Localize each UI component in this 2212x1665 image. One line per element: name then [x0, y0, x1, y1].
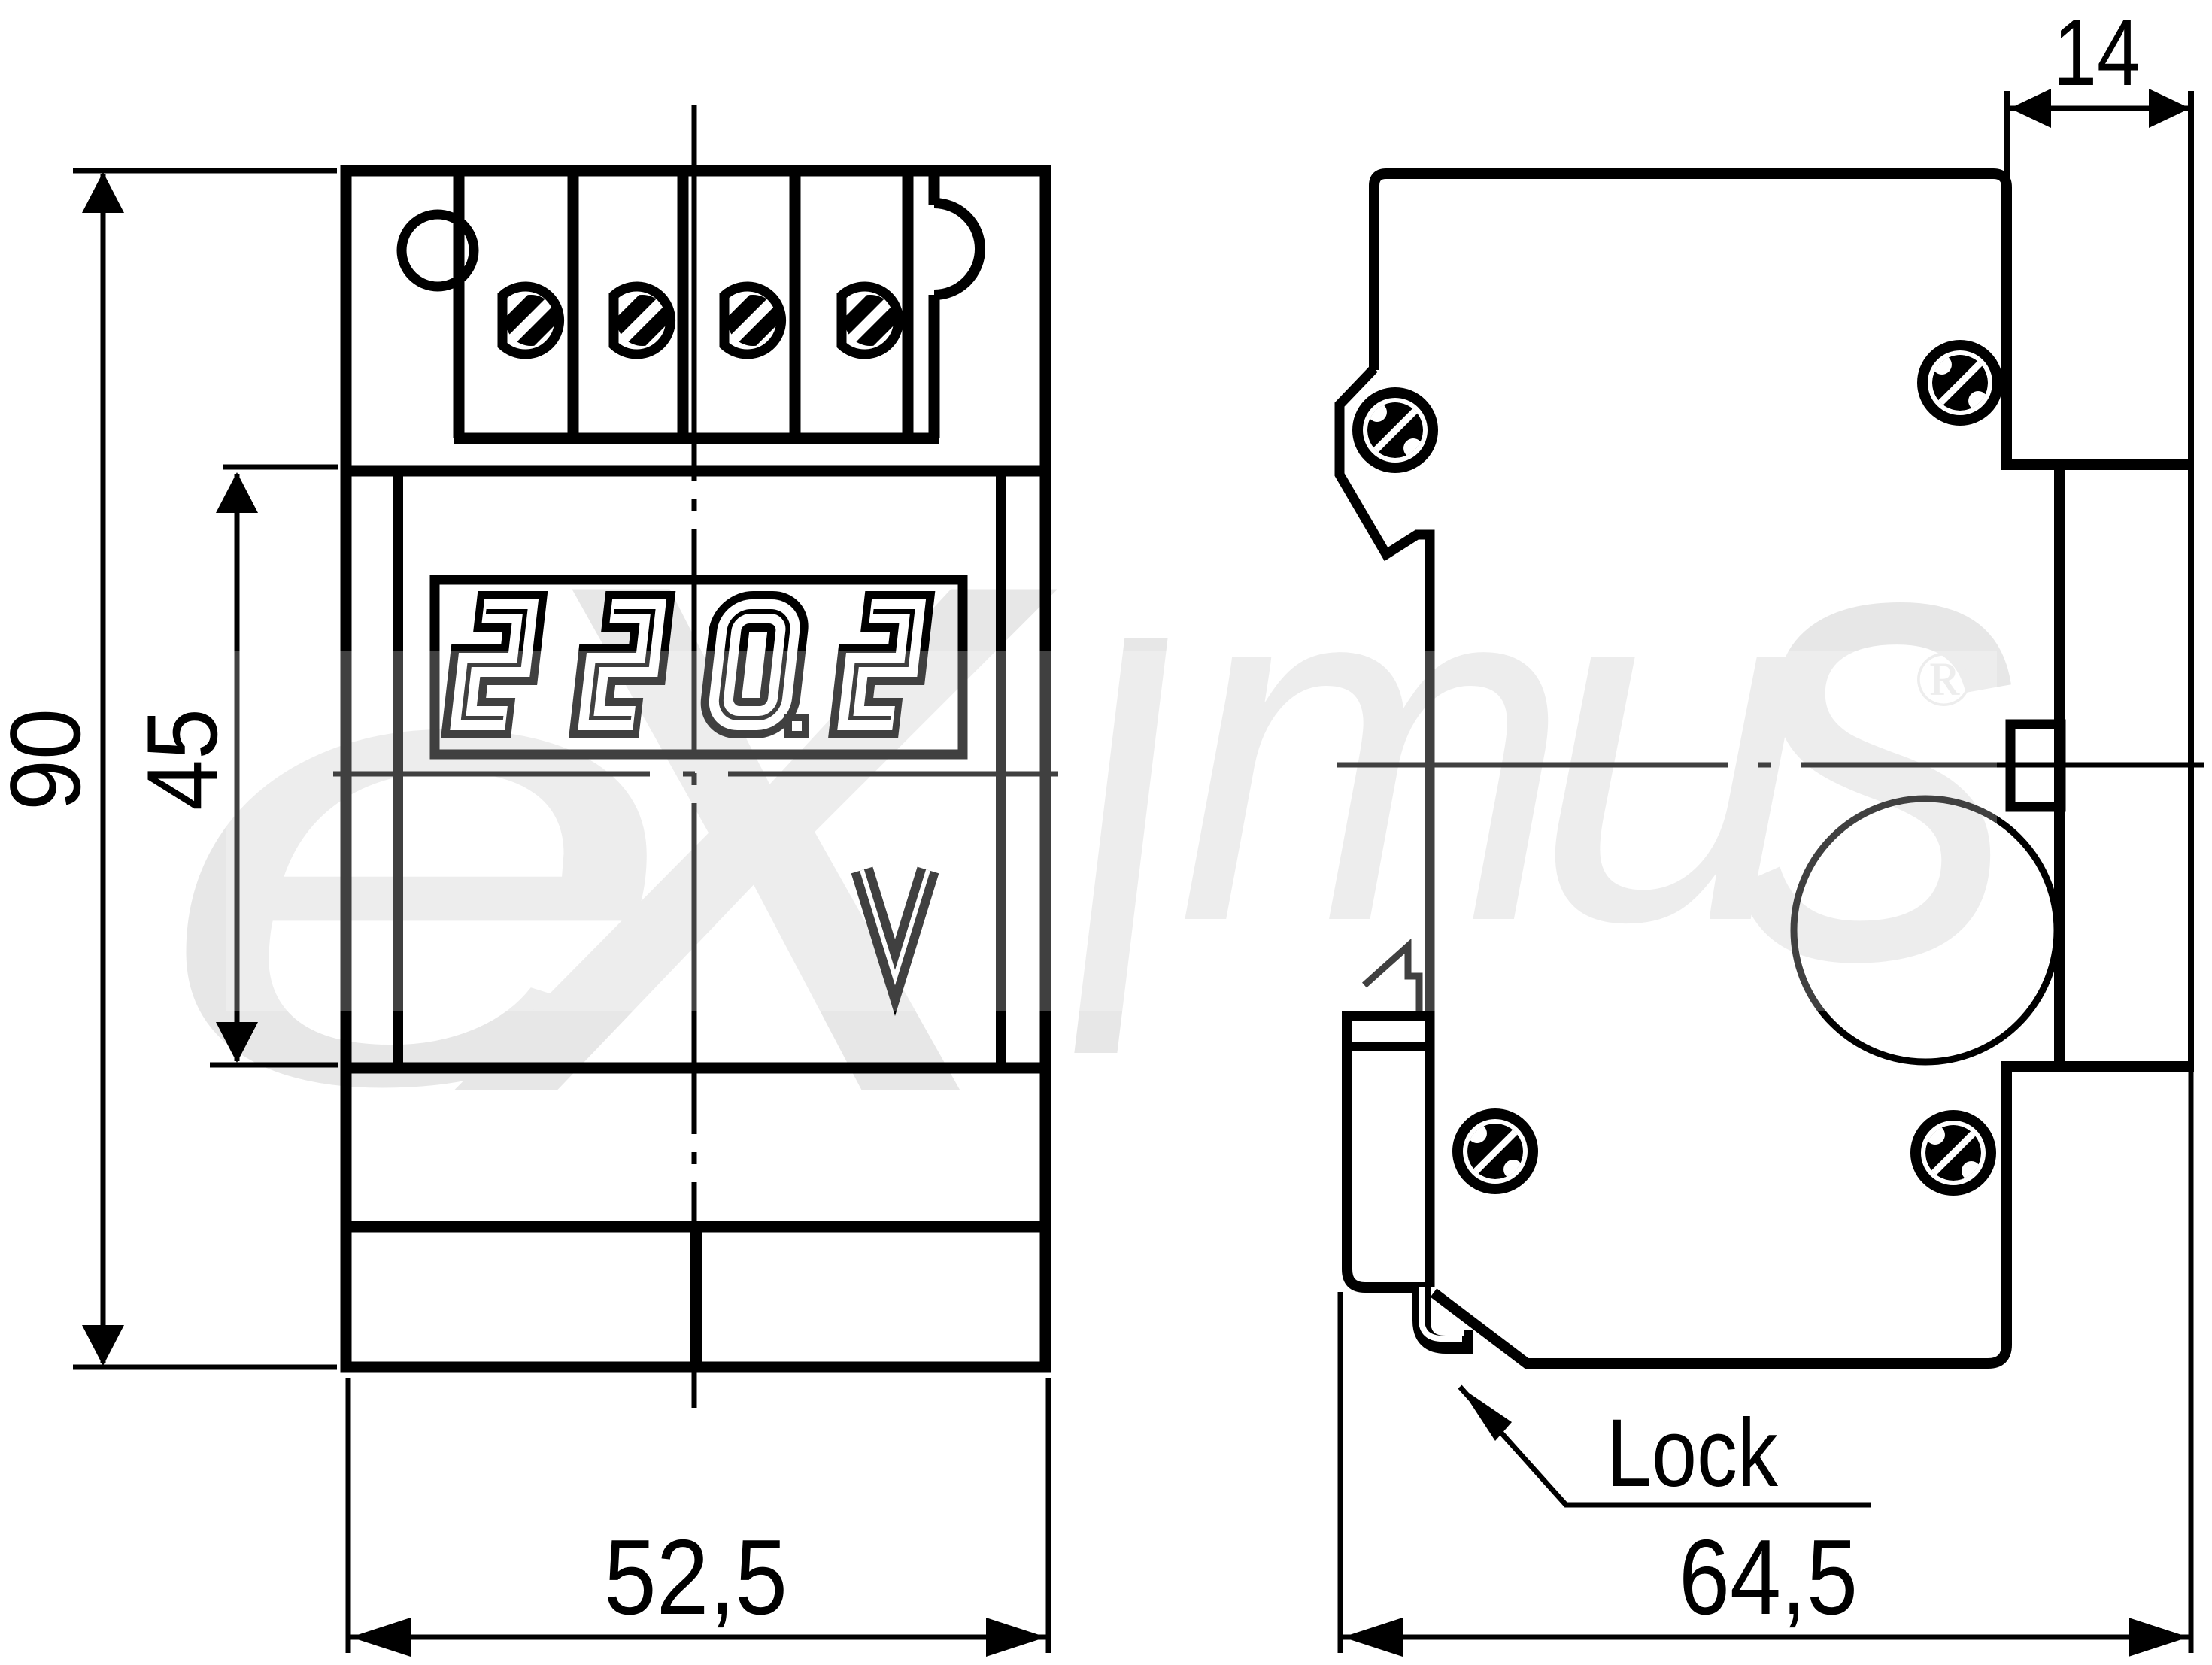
svg-text:14: 14 [2053, 1, 2141, 105]
svg-text:Lock: Lock [1607, 1400, 1779, 1507]
svg-text:64,5: 64,5 [1679, 1518, 1858, 1637]
svg-text:52,5: 52,5 [604, 1518, 787, 1637]
svg-text:90: 90 [0, 708, 102, 811]
svg-text:45: 45 [127, 708, 238, 811]
